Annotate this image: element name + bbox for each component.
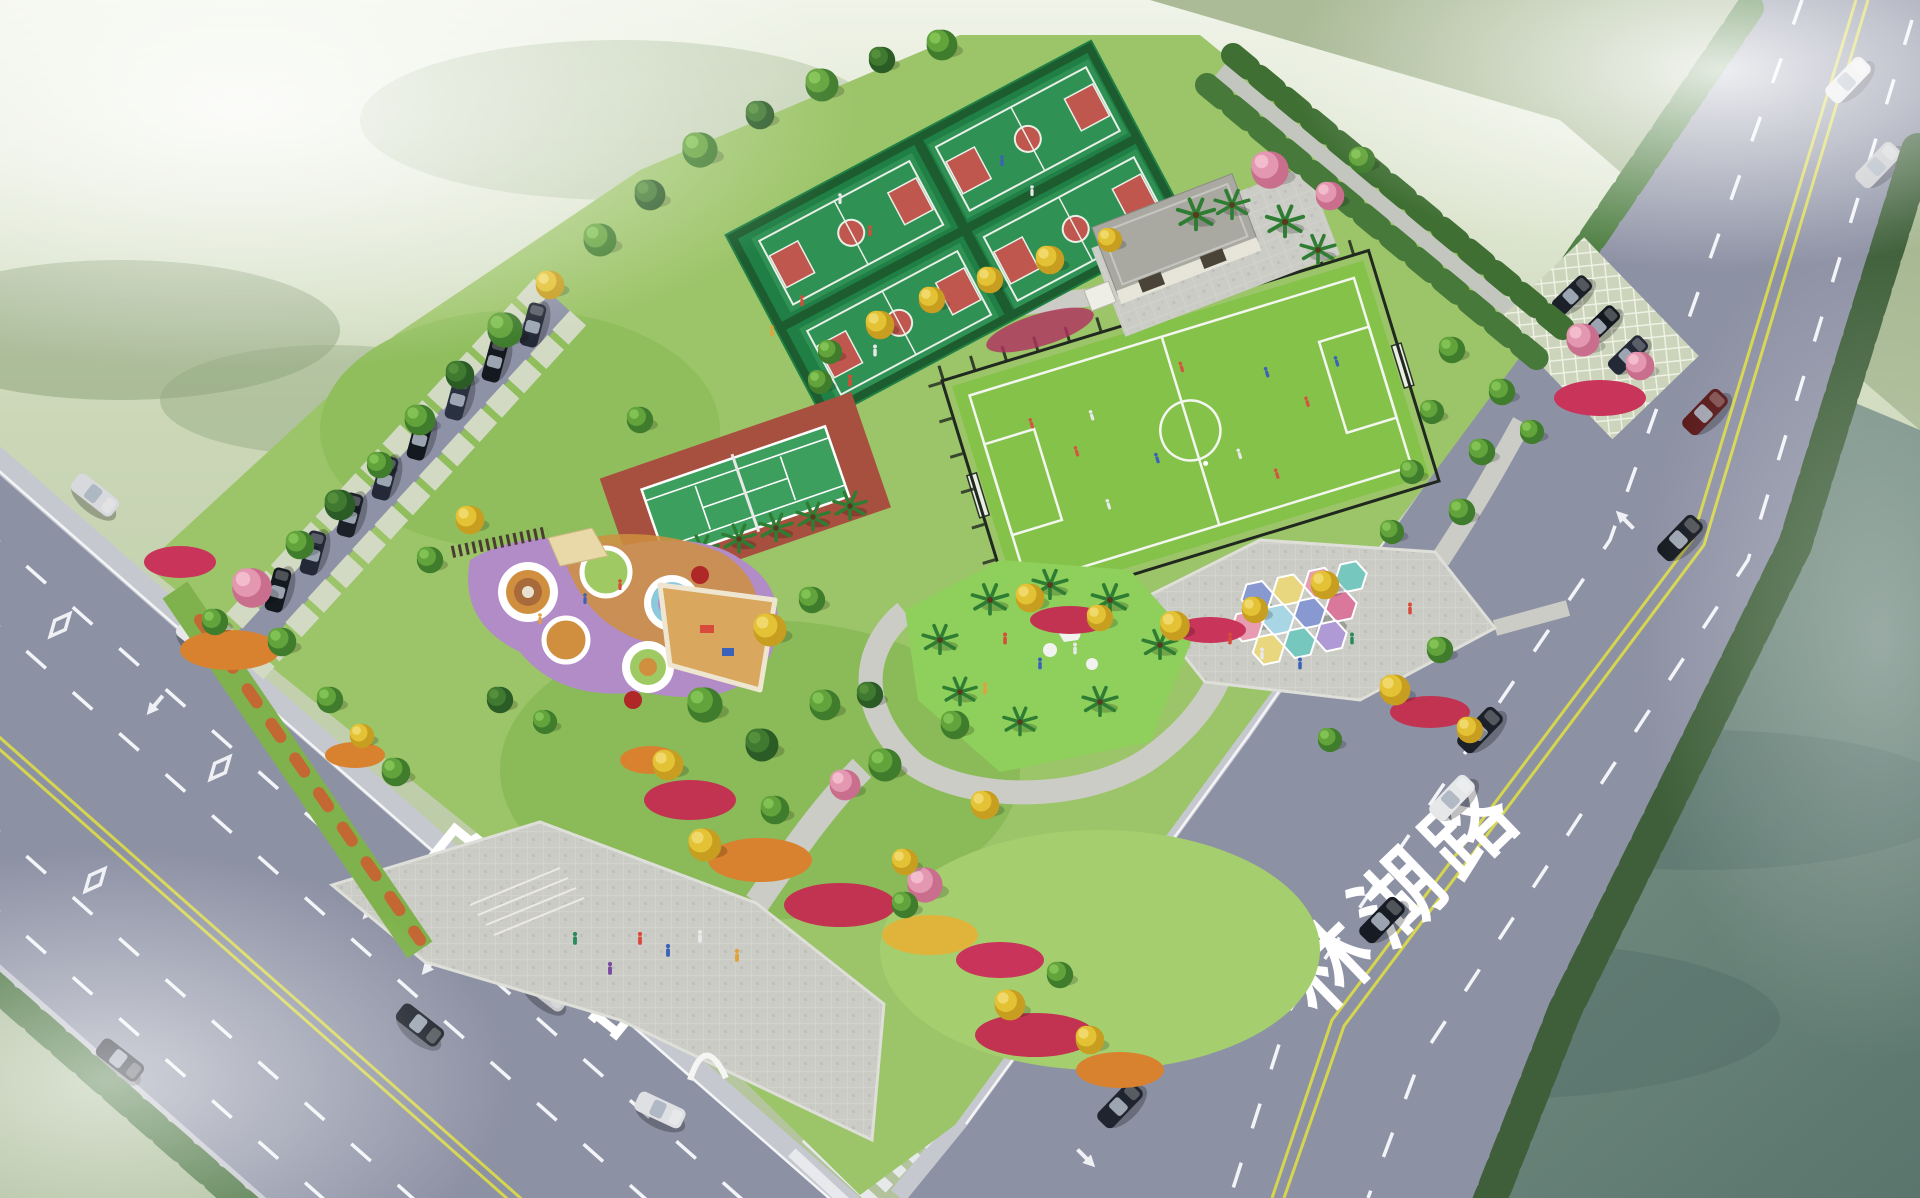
play-equipment: [722, 648, 734, 656]
sphere-sculpture: [1086, 658, 1098, 670]
play-equipment: [700, 625, 714, 633]
sphere-sculpture: [1043, 643, 1057, 657]
ladybug-play-sculpture: [624, 691, 642, 709]
aerial-scene: 白沙路 林湖路: [0, 0, 1920, 1198]
ladybug-play-sculpture: [691, 566, 709, 584]
park-masterplan-rendering: 白沙路 林湖路: [0, 0, 1920, 1198]
